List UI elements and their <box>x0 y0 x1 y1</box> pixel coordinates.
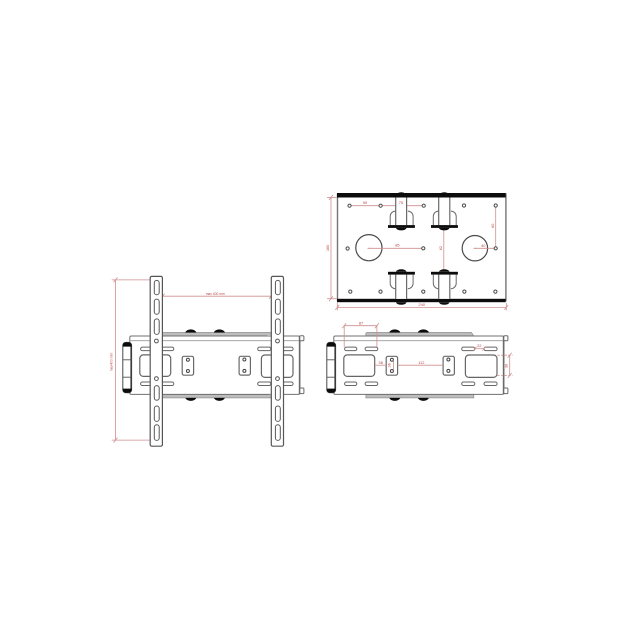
svg-text:22: 22 <box>477 343 481 348</box>
svg-text:62: 62 <box>438 246 443 250</box>
svg-text:160: 160 <box>325 244 330 251</box>
svg-text:240: 240 <box>419 302 426 307</box>
svg-text:36: 36 <box>504 364 509 368</box>
svg-text:max 400 mm: max 400 mm <box>206 291 225 296</box>
svg-text:max400 mm: max400 mm <box>108 353 113 372</box>
svg-text:75: 75 <box>399 200 403 205</box>
svg-text:87: 87 <box>359 320 363 325</box>
svg-text:36: 36 <box>387 363 392 367</box>
svg-text:112: 112 <box>418 360 424 365</box>
svg-text:36: 36 <box>379 360 383 365</box>
svg-text:85: 85 <box>395 243 399 248</box>
